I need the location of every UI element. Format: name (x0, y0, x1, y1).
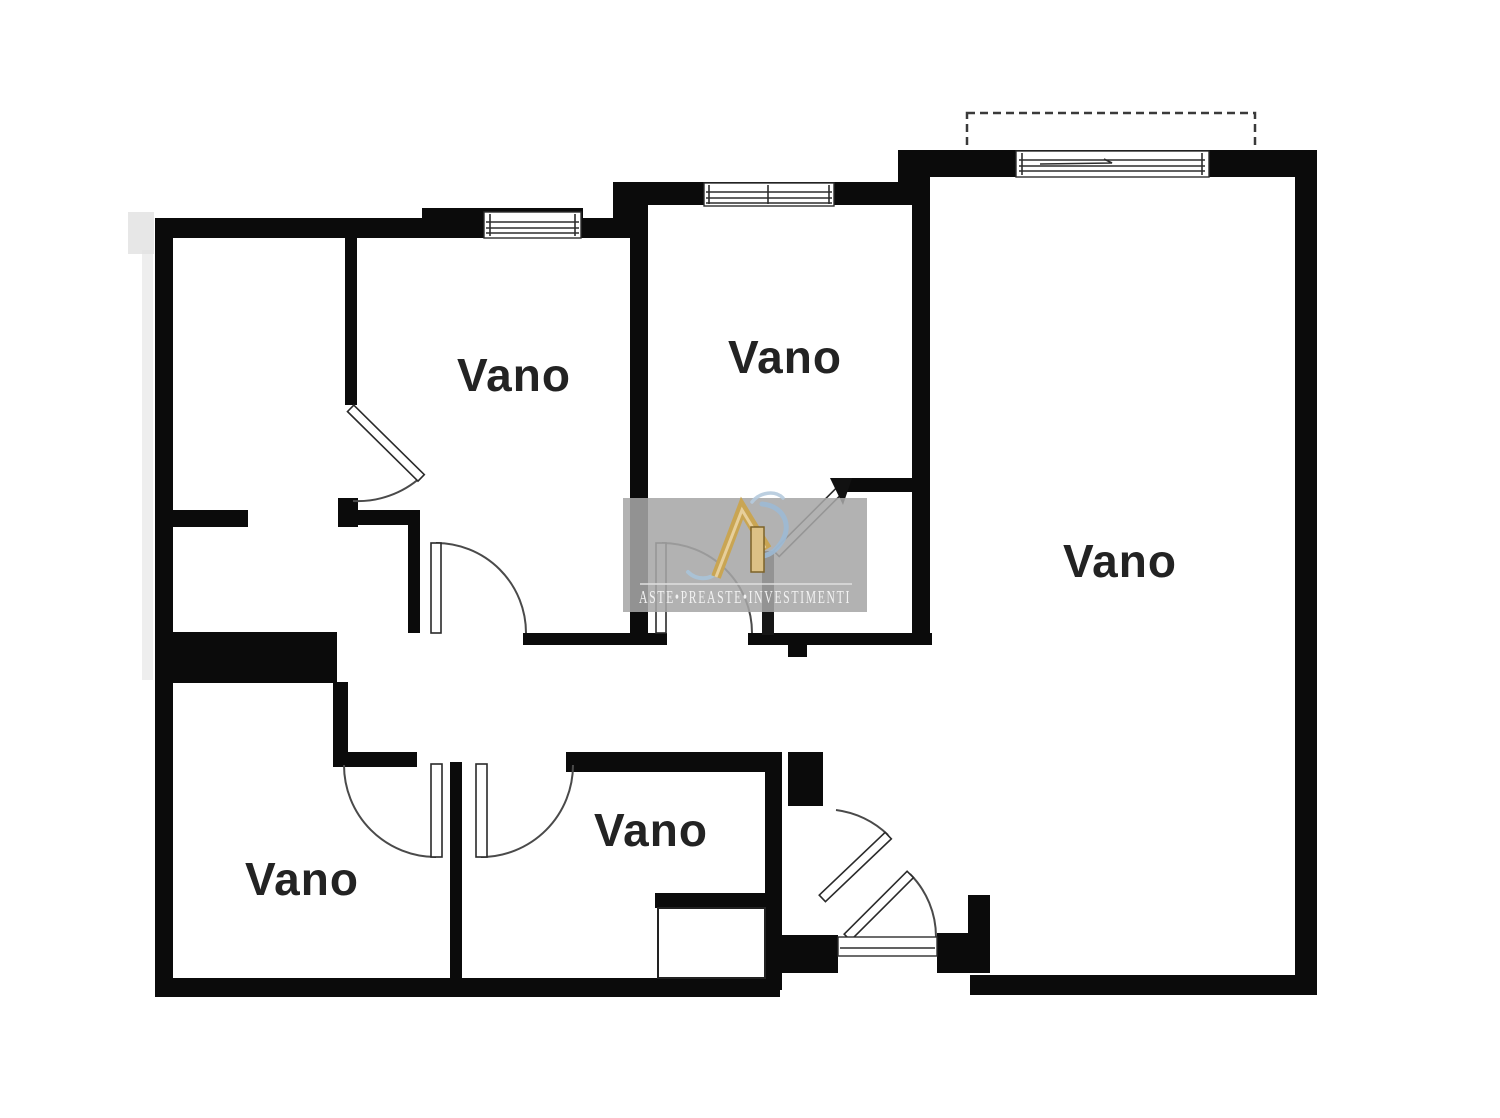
room-label: Vano (594, 804, 708, 856)
wall-l-vertical (408, 525, 420, 633)
wall-bottom-left (155, 978, 780, 997)
window-symbol (484, 212, 581, 238)
wall-b (338, 510, 420, 525)
wall-a (155, 510, 248, 527)
room-label: Vano (1063, 535, 1177, 587)
door-symbol (476, 764, 573, 857)
door-leaf (431, 543, 441, 633)
door-symbol (344, 764, 442, 857)
door-symbol (838, 871, 937, 956)
door-leaf (431, 764, 442, 857)
wall-hall-top-2 (748, 633, 932, 645)
wall-thick-band (157, 632, 337, 683)
room-label: Vano (728, 331, 842, 383)
floor-plan-page: Vano Vano Vano Vano Vano ASTE•PREASTE•IN… (0, 0, 1500, 1118)
wall-bottom-top-1 (337, 752, 417, 767)
floor-plan-svg: Vano Vano Vano Vano Vano ASTE•PREASTE•IN… (0, 0, 1500, 1118)
door-leaf (476, 764, 487, 857)
wall-bottom-top-2 (566, 752, 782, 772)
door-symbol (347, 405, 424, 501)
watermark: ASTE•PREASTE•INVESTIMENTI (623, 493, 867, 612)
window-symbol (704, 183, 834, 206)
door-leaf (844, 871, 913, 940)
scan-artifacts (128, 212, 154, 680)
watermark-text: ASTE•PREASTE•INVESTIMENTI (639, 587, 851, 607)
room-label: Vano (245, 853, 359, 905)
window-symbol (1016, 151, 1209, 177)
balcony-outline (967, 113, 1255, 153)
door-symbol (431, 543, 526, 633)
wall-right-outer (1295, 150, 1317, 995)
wall-closet-top (655, 893, 765, 908)
wall-entry-chunk (788, 752, 823, 806)
wall-entry-t (968, 895, 990, 955)
room-labels: Vano Vano Vano Vano Vano (245, 331, 1177, 905)
wall-narrowroom-right (345, 238, 357, 405)
wall-room2-lower (842, 478, 917, 492)
smudge (128, 212, 154, 254)
closet-outline (658, 908, 765, 978)
room-label: Vano (457, 349, 571, 401)
door-symbol (819, 810, 891, 902)
door-leaf (347, 405, 424, 481)
wall-hall-stub (788, 645, 807, 657)
entrance-threshold (838, 937, 937, 956)
wall-left-outer (155, 218, 173, 997)
wall-entry-bottom-left (765, 935, 838, 973)
smudge (142, 250, 153, 680)
wall-bottom-divider (450, 762, 462, 978)
wall-bottom-right (970, 975, 1317, 995)
wall-hall-top-1 (523, 633, 667, 645)
door-leaf (819, 832, 891, 901)
wall-bigroom-left (912, 150, 930, 643)
